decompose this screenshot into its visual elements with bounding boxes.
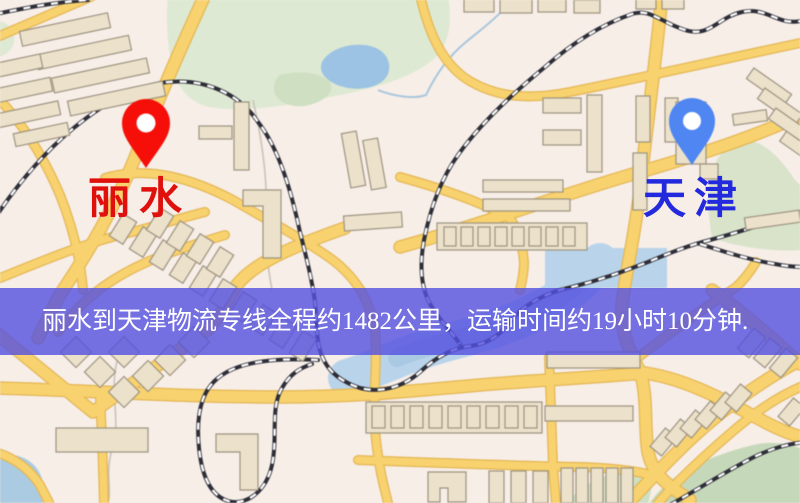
info-banner: 丽水到天津物流专线全程约1482公里，运输时间约19小时10分钟. xyxy=(0,288,800,355)
map-canvas xyxy=(0,0,800,503)
origin-label: 丽水 xyxy=(88,178,190,221)
destination-label: 天津 xyxy=(643,178,745,221)
banner-text: 丽水到天津物流专线全程约1482公里，运输时间约19小时10分钟. xyxy=(0,288,800,355)
map-image: 丽水 天津 丽水到天津物流专线全程约1482公里，运输时间约19小时10分钟. xyxy=(0,0,800,503)
